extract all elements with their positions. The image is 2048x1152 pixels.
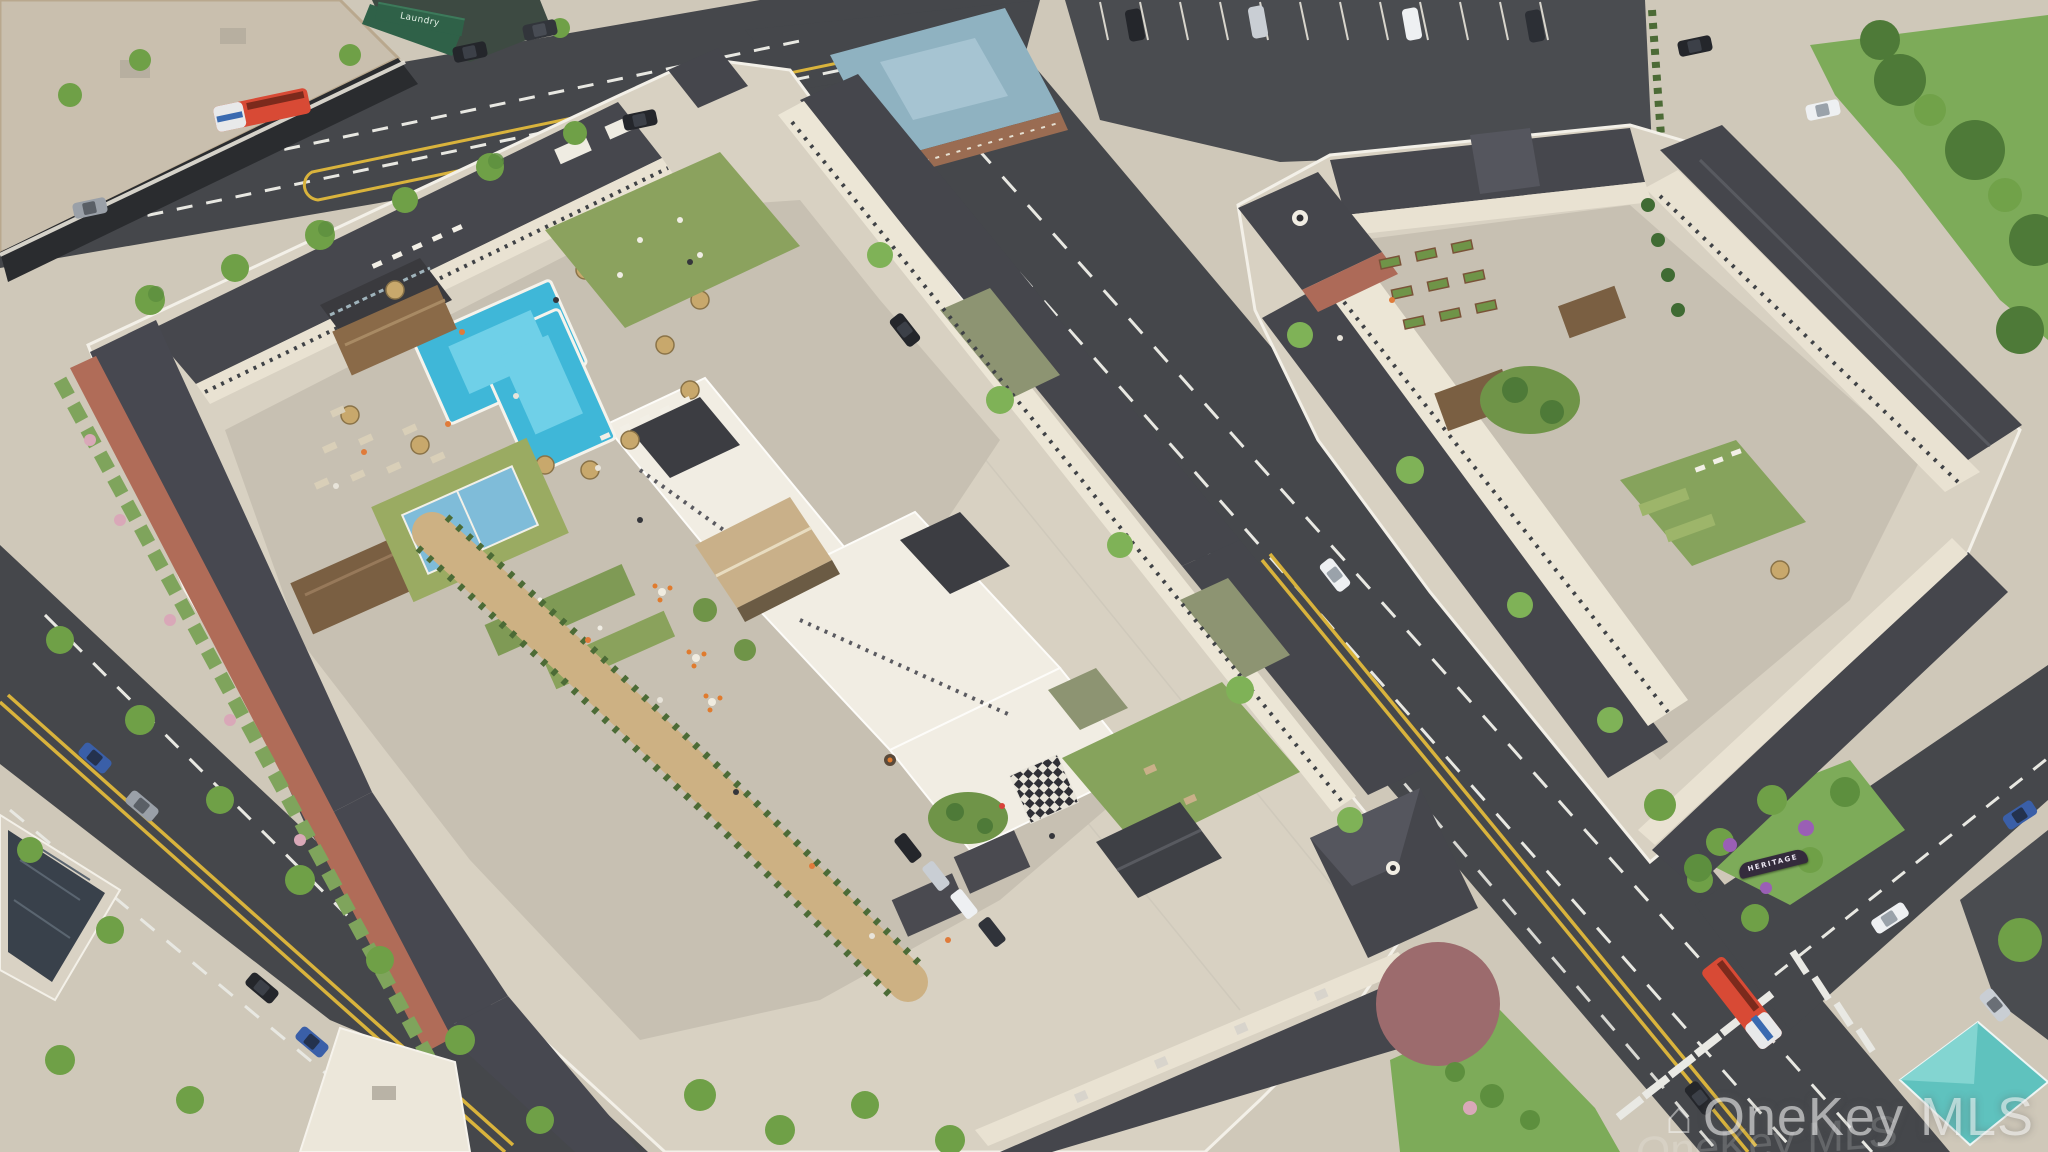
rendering-canvas: [0, 0, 2048, 1152]
entry-gable: [1470, 128, 1540, 194]
aerial-rendering: Laundry HERITAGE OneKey MLS OneKey MLS: [0, 0, 2048, 1152]
central-garden: [1480, 366, 1580, 434]
maroon-entry-patio: [1376, 942, 1500, 1066]
planting-bed: [928, 792, 1008, 844]
fire-bowl: [888, 758, 893, 763]
